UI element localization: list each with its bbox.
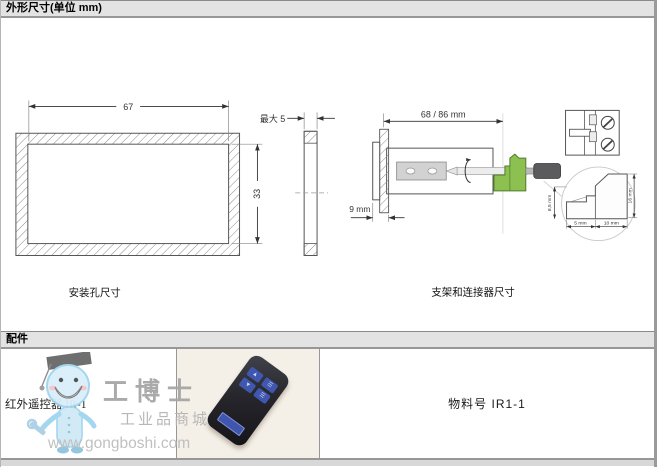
detail-dim-5mm: 5 mm: [574, 221, 586, 227]
dimension-drawings: 67 33 最大 5 安装孔尺寸: [1, 18, 654, 331]
connector-detail-view: 5 mm 10 mm 16 mm 8,5 mm: [547, 167, 637, 241]
accessory-name-cell: 红外遥控器 IR-1: [1, 349, 177, 458]
bracket-drawing: 68 / 86 mm: [349, 109, 563, 233]
mounting-hole-drawing: 67 33: [16, 100, 262, 255]
panel-cross-section: 最大 5: [260, 112, 335, 255]
technical-drawing-svg: 67 33 最大 5 安装孔尺寸: [1, 18, 654, 331]
page-bottom-strip: [1, 460, 654, 466]
remote-control-photo: ▲ ☰ ▼ ☰: [204, 352, 292, 449]
section-title-accessories: 配件: [6, 333, 28, 345]
dim-height-label: 33: [252, 189, 262, 199]
accessory-part-cell: 物料号 IR1-1: [320, 349, 654, 458]
remote-buttons: ▲ ☰ ▼ ☰: [238, 366, 279, 405]
dim-width-label: 67: [123, 102, 133, 112]
section-header-dimensions: 外形尺寸(单位 mm): [1, 0, 654, 18]
section-header-accessories: 配件: [1, 331, 654, 349]
max-thickness-label: 最大 5: [260, 113, 285, 124]
accessory-row: 红外遥控器 IR-1 ▲ ☰ ▼ ☰ 物料号 IR1-1: [1, 349, 654, 460]
section-title-dimensions: 外形尺寸(单位 mm): [6, 2, 102, 14]
bracket-plate: [397, 162, 447, 180]
remote-label-badge: [217, 411, 246, 436]
bracket-caption: 支架和连接器尺寸: [431, 285, 514, 298]
connector-front-view: [566, 110, 620, 155]
accessory-photo-cell: ▲ ☰ ▼ ☰: [177, 349, 320, 458]
detail-dim-8-5mm: 8,5 mm: [547, 195, 553, 212]
accessory-part-number: 物料号 IR1-1: [448, 395, 526, 412]
datasheet-page: 外形尺寸(单位 mm): [0, 0, 657, 467]
accessory-name: 红外遥控器 IR-1: [1, 396, 86, 412]
bracket-depth-label: 9 mm: [349, 204, 370, 214]
mounting-hole-caption: 安装孔尺寸: [69, 286, 121, 299]
screwdriver-handle: [534, 164, 561, 179]
bracket-length-label: 68 / 86 mm: [421, 109, 466, 119]
detail-dim-10mm: 10 mm: [604, 221, 619, 227]
detail-dim-16mm: 16 mm: [628, 188, 634, 203]
